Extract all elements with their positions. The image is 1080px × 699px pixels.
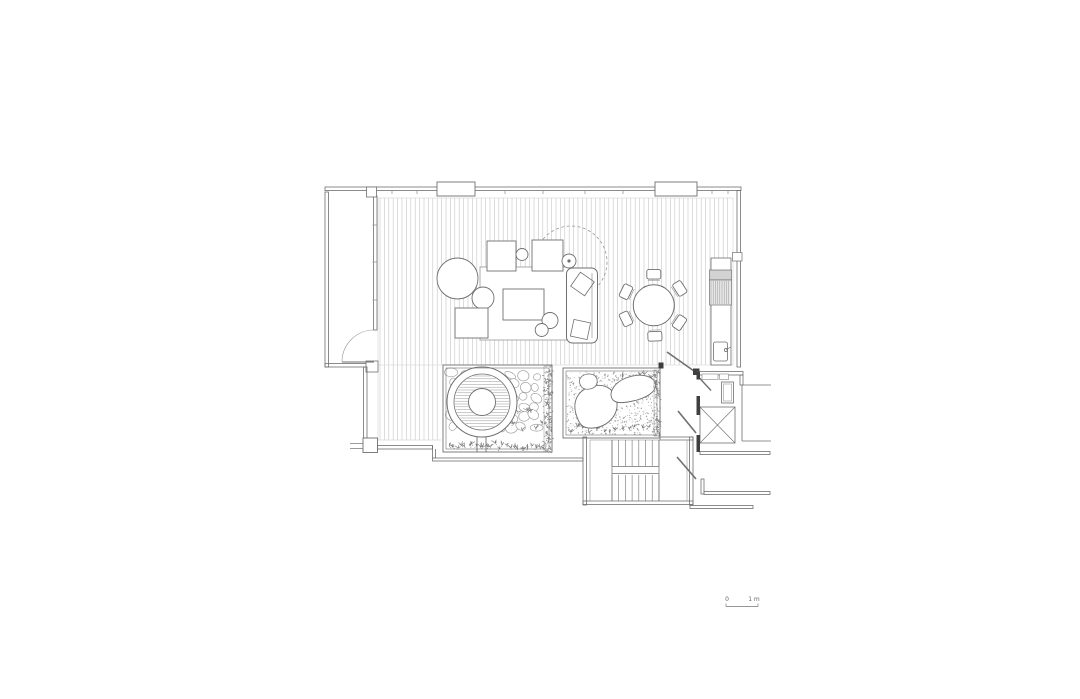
floor-plan: 01 m (0, 0, 1080, 699)
dining-table (633, 285, 674, 326)
door-jamb-4 (697, 435, 701, 443)
scale-label-one: 1 m (748, 596, 760, 603)
lounge-chair-2 (532, 240, 563, 271)
lobby-door-leaf-1 (678, 411, 696, 433)
entry-door-leaf (667, 352, 694, 371)
wall-right (737, 191, 741, 368)
dining-chair (670, 313, 687, 331)
glazing-end-tick (659, 363, 664, 369)
lounge-chair-1 (487, 241, 516, 271)
svg-text:1 m: 1 m (748, 596, 760, 603)
corridor-wall-a (700, 452, 770, 455)
wall-bottom-a (378, 446, 433, 450)
wall-bottom-step (433, 446, 436, 459)
corridor-wall-b (701, 479, 704, 494)
grill-hood (710, 270, 732, 280)
wall-left-lower (364, 367, 368, 438)
hot-tub-seat (469, 389, 496, 416)
stair-treads-upper (612, 440, 659, 466)
balcony-wall-left (325, 192, 329, 367)
door-jamb-2 (697, 396, 701, 407)
floor-cushion (455, 308, 488, 338)
stool-2 (535, 324, 548, 337)
boulder-small (579, 374, 597, 389)
balcony-wall-right (374, 196, 378, 330)
bench-inner (724, 384, 732, 401)
wall-bottom-b (433, 458, 584, 461)
floor-plan-page: 01 m (0, 0, 1080, 699)
balcony-door-swing (342, 330, 374, 362)
door-jamb-5 (697, 443, 701, 452)
mullion-box-1 (437, 182, 475, 196)
vestibule-frame-2 (720, 374, 729, 380)
grill-body (710, 280, 732, 305)
corner-block (363, 438, 378, 453)
pouf-small (516, 249, 528, 261)
dining-chair (648, 330, 662, 341)
svg-text:0: 0 (725, 596, 729, 603)
coffee-table (503, 289, 544, 320)
balcony-post-top (367, 187, 377, 197)
dining-chair (671, 280, 688, 298)
dining-chair (647, 270, 661, 281)
dining-chair (619, 310, 635, 327)
balcony-post-bottom (366, 361, 378, 372)
round-table-medium (472, 287, 494, 309)
stair-treads-lower (612, 475, 659, 501)
stair-wall-top (660, 437, 693, 440)
dining-chair (619, 283, 635, 300)
stair-wall-left (583, 437, 587, 505)
corridor-wall-c (704, 492, 770, 495)
round-table-large (437, 258, 478, 299)
side-table-dot (567, 259, 570, 262)
mullion-box-2 (655, 182, 697, 196)
deck-boards-lower (380, 365, 437, 440)
elevator (700, 407, 735, 443)
wall-right-joint (733, 253, 743, 262)
stair-wall-bottom (583, 501, 693, 505)
door-jamb-1 (697, 372, 701, 380)
corridor-wall-d (690, 506, 753, 509)
door-jamb-3 (697, 407, 701, 415)
wall-right-step (740, 375, 743, 385)
scale-label-zero: 0 (725, 596, 729, 603)
vestibule-frame-1 (702, 374, 718, 380)
boulder-large (575, 385, 617, 428)
